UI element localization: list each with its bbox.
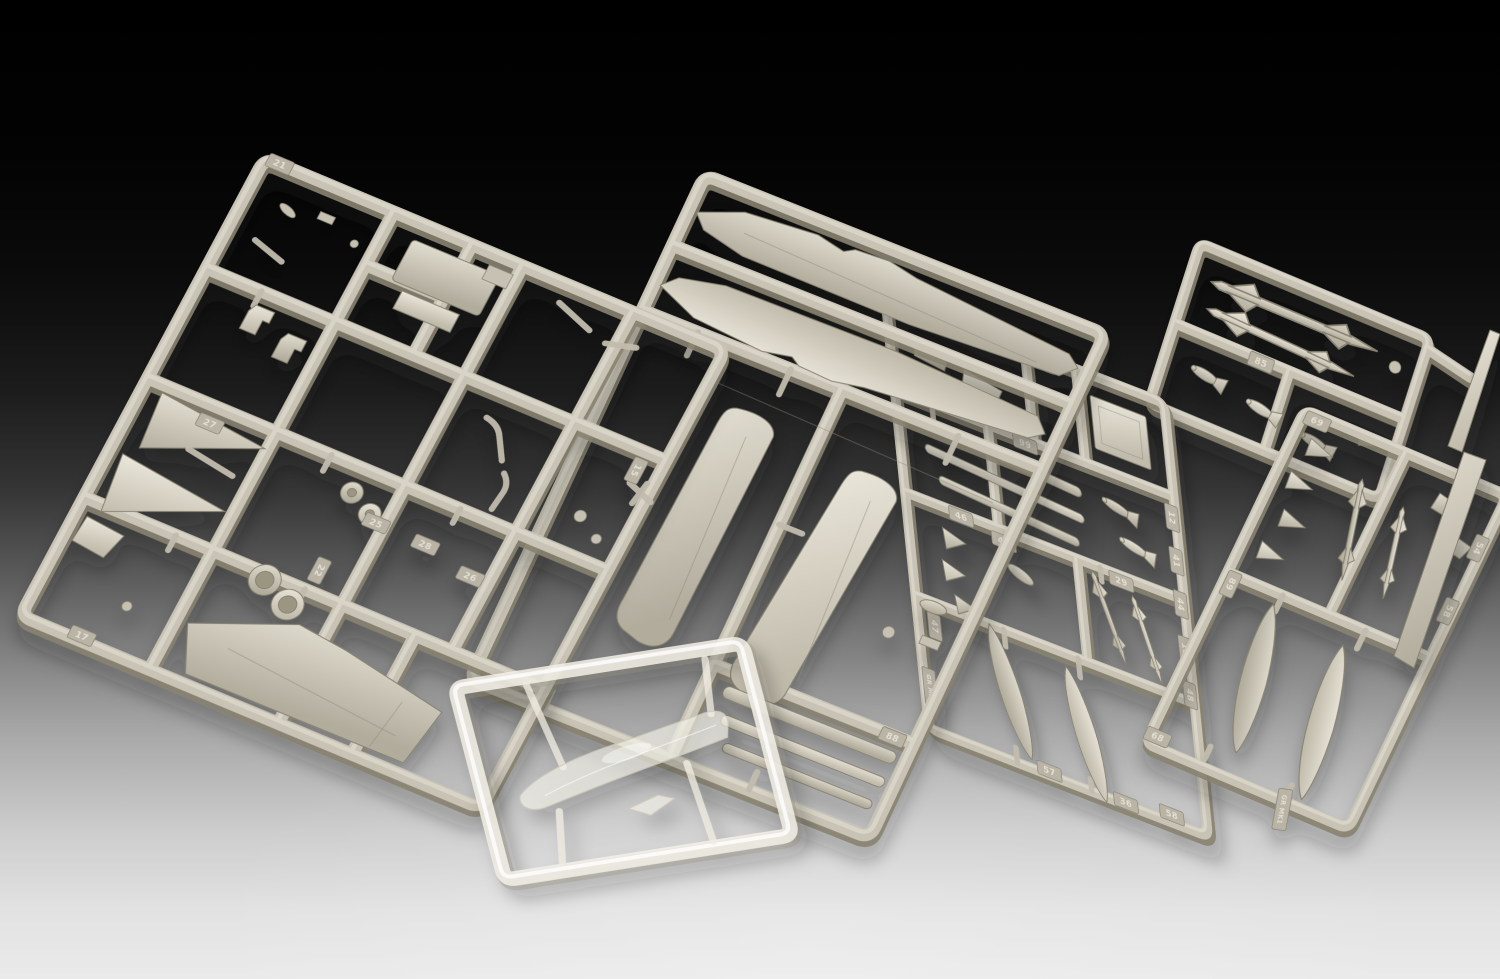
part-small [572, 508, 589, 523]
part-small [881, 625, 897, 640]
part-number-tag: 28 [410, 534, 441, 556]
part-fin [1255, 541, 1288, 568]
part-small [120, 600, 134, 613]
sprue-d-frame [1146, 240, 1479, 524]
part-wheel [337, 479, 368, 507]
small-parts-cluster [250, 194, 366, 285]
sprue-d-missiles: 85 [1146, 240, 1479, 524]
part-fin [943, 527, 967, 556]
part-missile [1125, 595, 1169, 686]
part-fin [942, 559, 966, 588]
part-number-tag: 15 [624, 456, 649, 484]
model-kit-sprues-photo: 85 40A 87 99 46 [0, 0, 1500, 979]
part-number-tag: 22 [307, 556, 332, 584]
part-pitot [185, 449, 237, 476]
part-fin [1276, 509, 1309, 536]
part-drop-tank [1288, 642, 1356, 802]
part-small [1388, 359, 1403, 375]
part-bomb [1101, 492, 1139, 529]
part-small [589, 533, 603, 546]
part-ejection-seat [239, 304, 274, 338]
product-photo-stage: 85 40A 87 99 46 [0, 0, 1500, 979]
part-number-tag: 47 [927, 611, 943, 642]
sprue-a-airframe: 21 25 27 26 28 22 15 17 [17, 151, 734, 814]
part-ejection-seat [271, 332, 306, 366]
part-bomb [1119, 531, 1157, 568]
part-fairing [1007, 560, 1035, 589]
part-windscreen [626, 793, 677, 819]
part-wing-slat [1448, 330, 1500, 452]
part-bomb [1188, 360, 1228, 395]
sprue-b-fuselage: 88 [466, 172, 1108, 843]
part-number-tag: 26 [455, 565, 486, 587]
part-number-tag: 88 [877, 726, 907, 748]
part-gear-leg [448, 418, 533, 510]
part-drop-tank [1222, 601, 1286, 755]
part-number-tag: 46 [948, 505, 974, 528]
